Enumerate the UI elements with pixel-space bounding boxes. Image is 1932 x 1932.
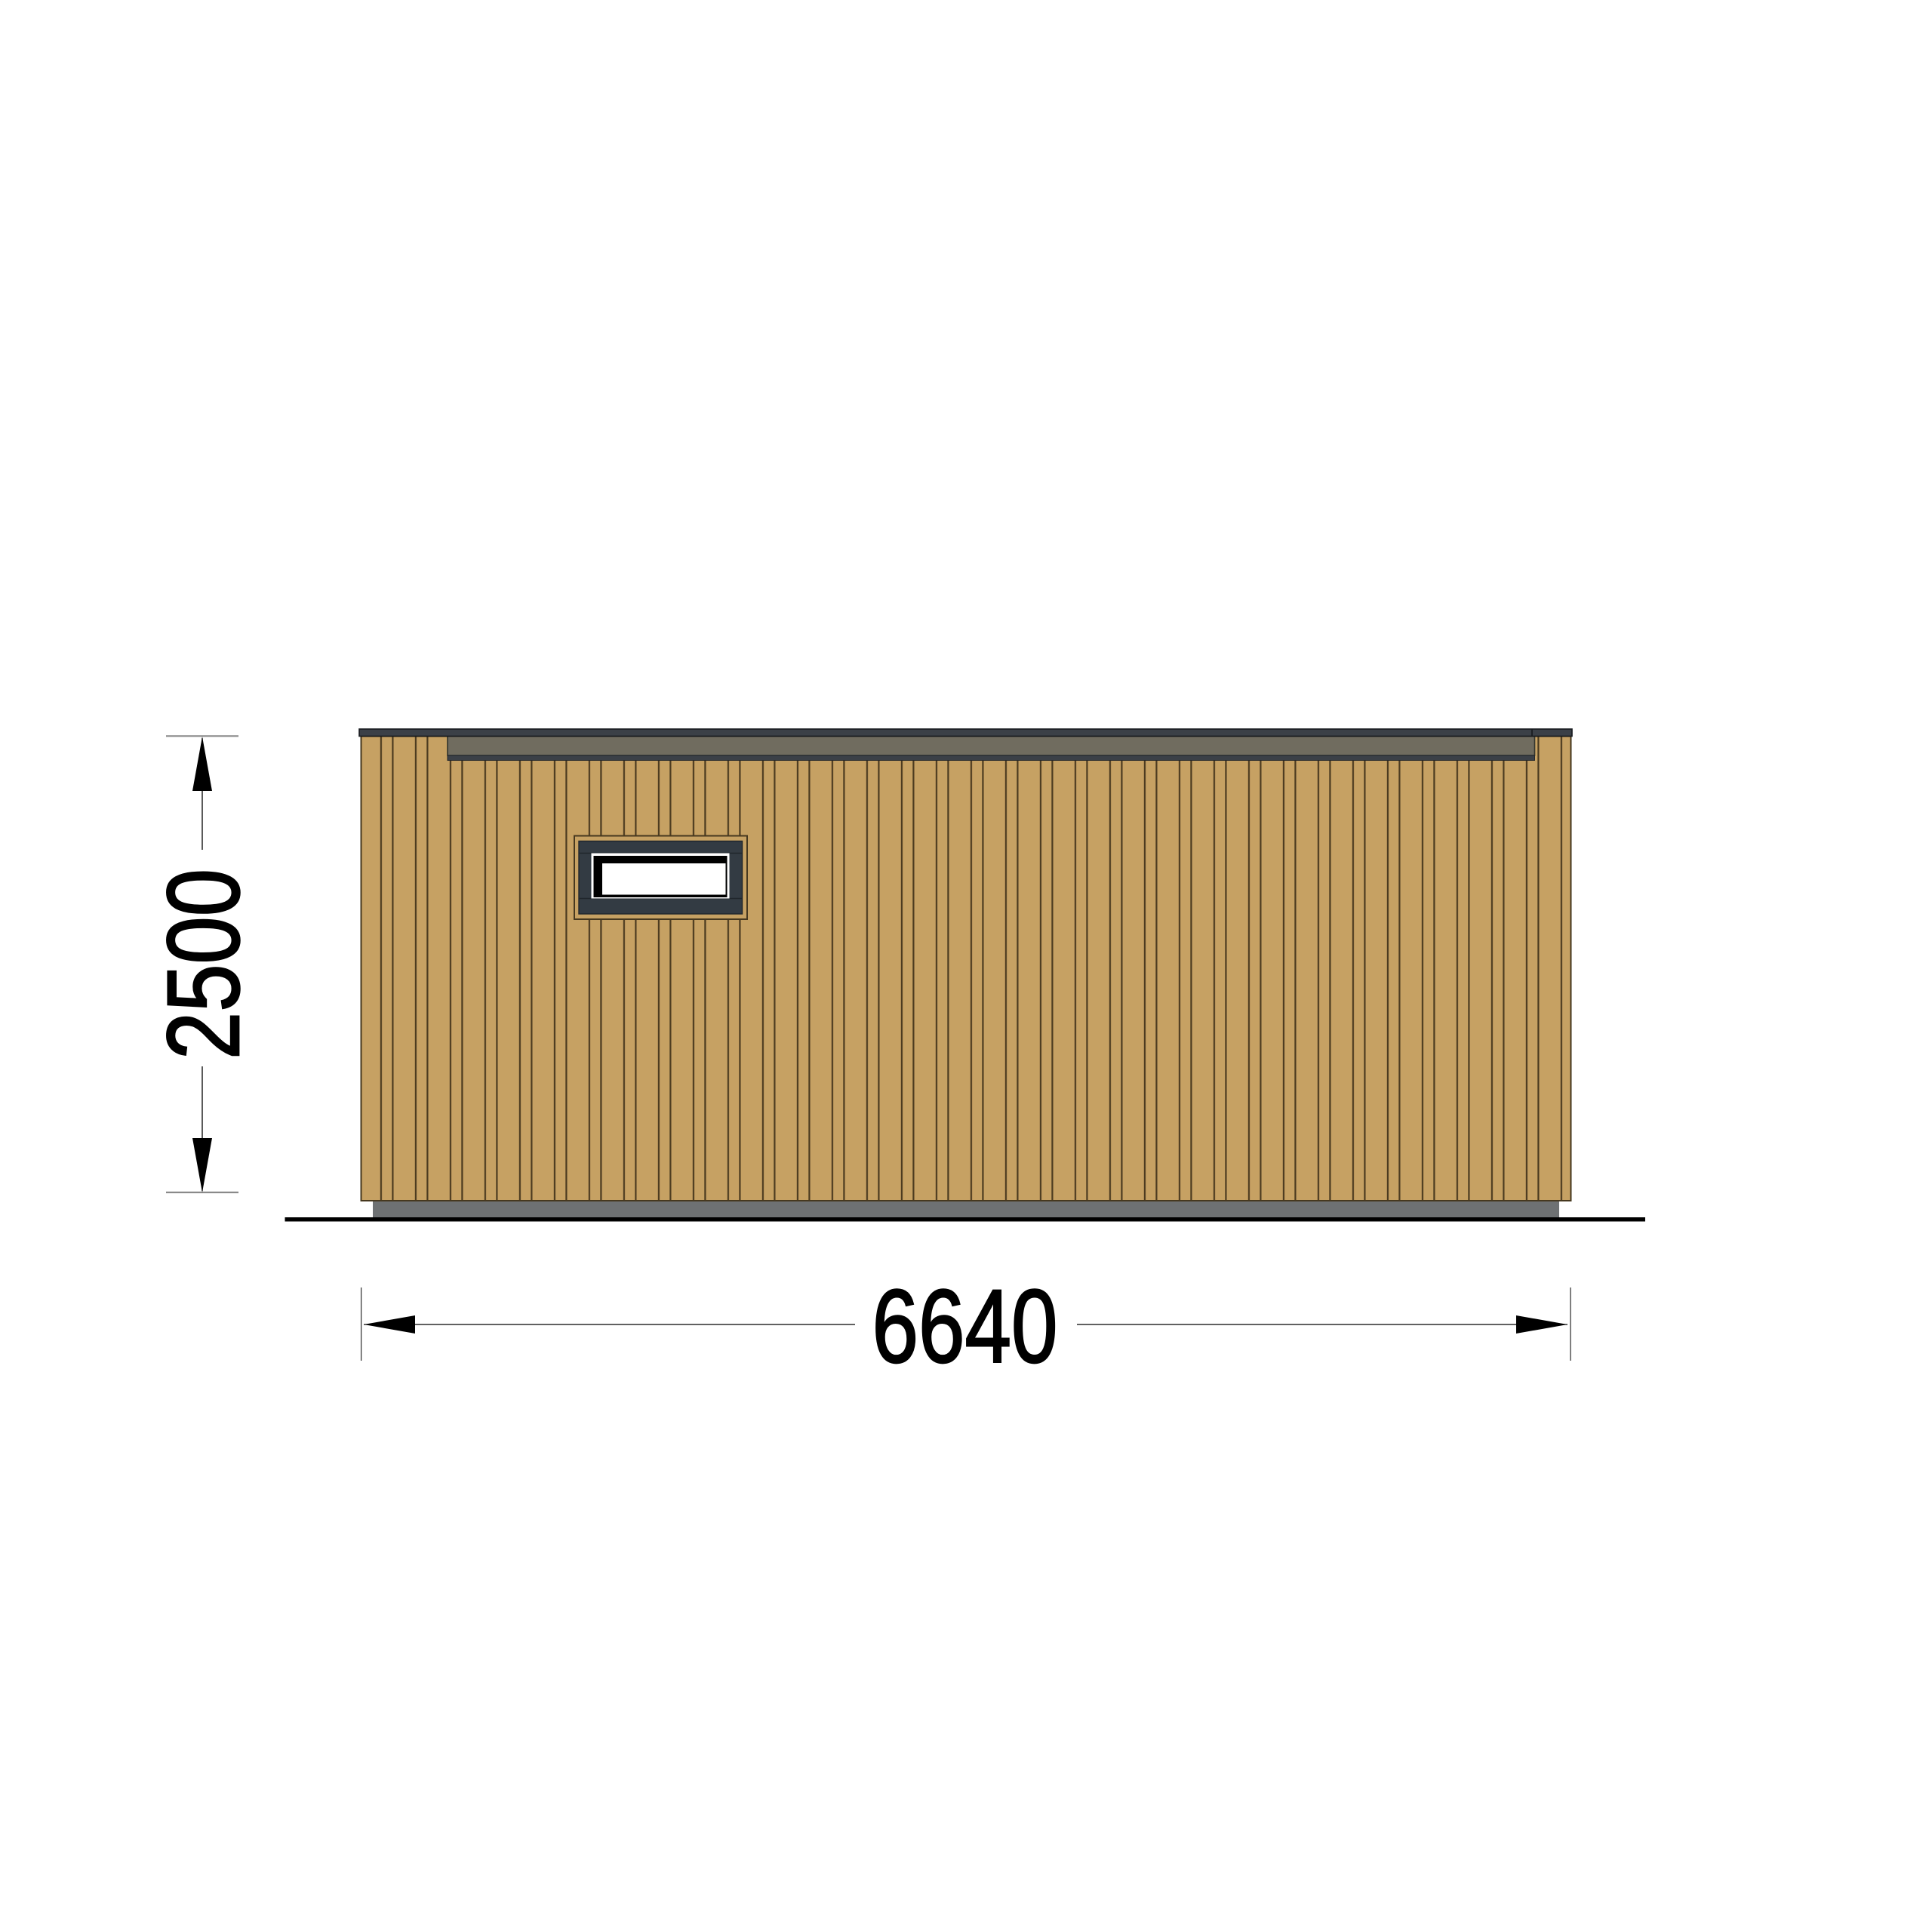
svg-text:2500: 2500 bbox=[146, 869, 260, 1060]
svg-text:6640: 6640 bbox=[872, 1269, 1058, 1385]
